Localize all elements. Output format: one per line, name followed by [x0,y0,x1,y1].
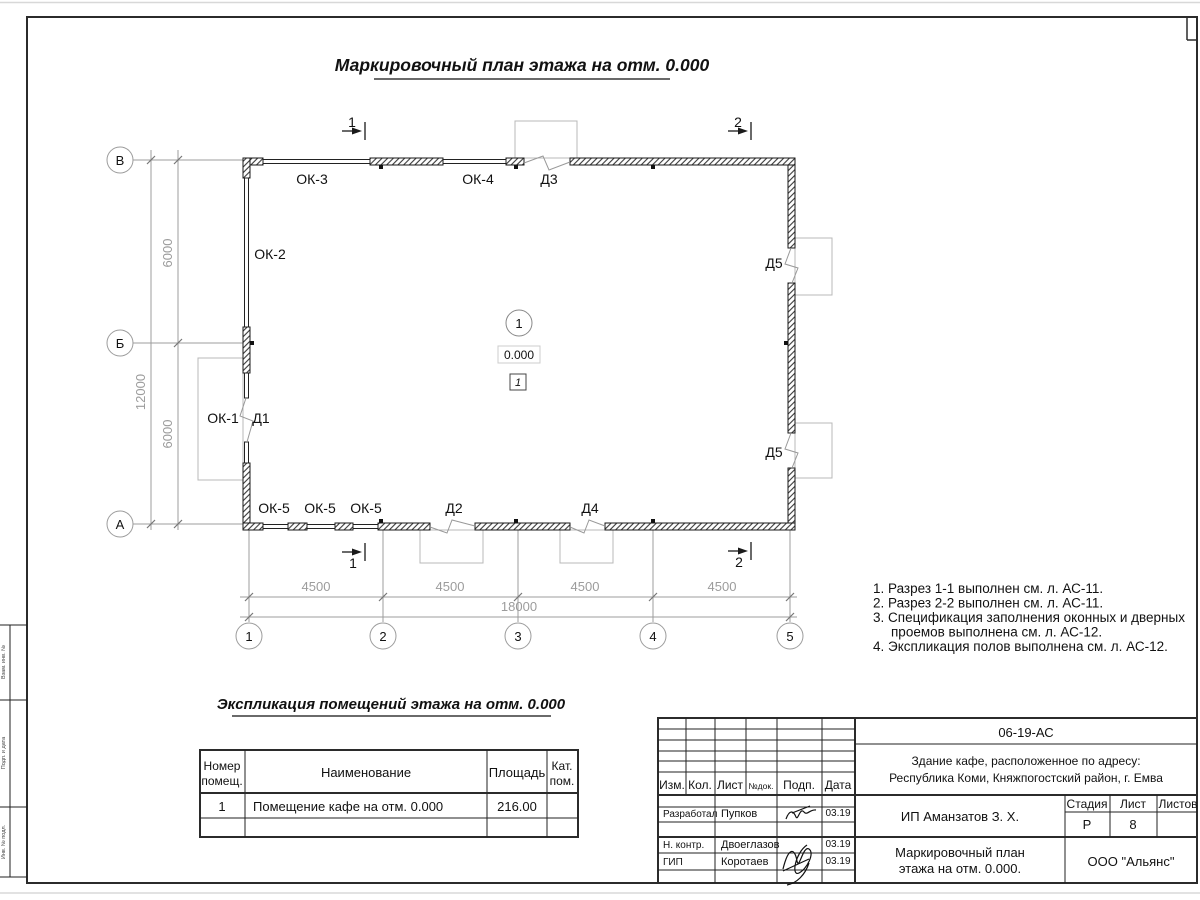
svg-text:2: 2 [735,554,743,570]
drawing-title-1: Маркировочный план [895,845,1025,860]
window-ok3 [263,160,370,164]
margin-label-vzam: Взам. инв. № [1,645,7,679]
axis-row-b: Б [116,336,125,351]
col-data: Дата [825,778,852,792]
axis-col-4: 4 [649,629,656,644]
table-title: Экспликация помещений этажа на отм. 0.00… [217,696,566,716]
window-ok5-3 [353,525,378,529]
cell-room-num: 1 [218,799,225,814]
section-1-bottom: 1 [342,543,365,571]
date-gip: 03.19 [825,856,850,867]
door-d5-top [785,248,798,283]
svg-text:1: 1 [349,555,357,571]
col-header-area: Площадь [489,765,546,780]
dim-4500-3: 4500 [571,579,600,594]
door-d5-bottom [785,433,798,468]
dim-12000: 12000 [133,374,148,410]
margin-label-inv: Инв. № подл. [1,824,7,859]
role-developer: Разработал [663,808,718,820]
col-kol: Кол. [688,778,712,792]
window-ok2 [245,178,249,327]
table-title-text: Экспликация помещений этажа на отм. 0.00… [217,696,566,713]
company-name: ООО "Альянс" [1088,854,1175,869]
window-ok1-top [245,373,249,398]
section-2-bottom: 2 [728,542,751,570]
dim-4500-1: 4500 [302,579,331,594]
dim-4500-2: 4500 [436,579,465,594]
table-row: 1 Помещение кафе на отм. 0.000 216.00 [218,799,537,814]
col-list: Лист [717,778,744,792]
label-d3: Д3 [540,171,557,187]
name-developer: Пупков [721,808,757,820]
col-header-cat-1: Кат. [552,759,573,773]
main-title: Маркировочный план этажа на отм. 0.000 [335,55,710,79]
project-address-1: Здание кафе, расположенное по адресу: [911,754,1140,768]
room-markers: 1 0.000 1 [498,310,540,390]
col-header-cat-2: пом. [550,774,575,788]
label-d5-bottom: Д5 [765,444,782,460]
name-gip: Коротаев [721,856,769,868]
svg-text:1: 1 [348,114,356,130]
role-gip: ГИП [663,857,683,868]
label-ok5-3: ОК-5 [350,500,382,516]
cell-room-name: Помещение кафе на отм. 0.000 [253,799,443,814]
section-1-top: 1 [342,114,365,140]
axis-col-1: 1 [245,629,252,644]
note-2: 2. Разрез 2-2 выполнен см. л. АС-11. [873,596,1103,611]
window-ok1-bottom [245,442,249,463]
label-ok5-1: ОК-5 [258,500,290,516]
drawing-sheet: Взам. инв. № Подп. и дата Инв. № подл. М… [0,0,1200,900]
col-header-num-2: помещ. [201,774,242,788]
col-header-num-1: Номер [204,759,241,773]
note-4: 4. Экспликация полов выполнена см. л. АС… [873,639,1168,654]
drawing-title-2: этажа на отм. 0.000. [899,861,1021,876]
note-1: 1. Разрез 1-1 выполнен см. л. АС-11. [873,581,1103,596]
role-ncontrol: Н. контр. [663,840,704,851]
label-ok1: ОК-1 [207,410,239,426]
title-block: Изм. Кол. Лист №док. Подп. Дата Разработ… [658,718,1198,885]
section-2-top: 2 [728,114,751,140]
door-openings [240,156,798,533]
sheet-value: 8 [1129,817,1136,832]
room-number: 1 [515,316,522,331]
room-table: Номер помещ. Наименование Площадь Кат. п… [200,750,578,837]
label-d1: Д1 [252,410,269,426]
col-podp: Подп. [783,778,815,792]
date-ncontrol: 03.19 [825,839,850,850]
doc-number: 06-19-АС [998,725,1053,740]
floor-type-mark: 1 [515,377,521,389]
label-ok3: ОК-3 [296,171,328,187]
name-ncontrol: Двоеглазов [721,839,780,851]
wall-grid-ticks [250,165,788,523]
note-3-cont: проемов выполнена см. л. АС-12. [891,625,1102,640]
axis-bubbles: В Б А 1 2 3 4 5 [107,147,803,649]
main-title-text: Маркировочный план этажа на отм. 0.000 [335,55,710,75]
door-d4 [570,520,605,533]
axis-row-v: В [116,153,125,168]
door-d1 [240,398,253,442]
door-d2 [430,520,475,533]
label-ok4: ОК-4 [462,171,494,187]
window-ok4 [443,160,506,164]
col-izm: Изм. [659,778,685,792]
axis-col-2: 2 [379,629,386,644]
plan-labels: ОК-3 ОК-4 Д3 ОК-2 ОК-1 Д1 ОК-5 ОК-5 ОК-5… [207,171,783,516]
note-3: 3. Спецификация заполнения оконных и две… [873,610,1185,625]
cell-room-area: 216.00 [497,799,537,814]
label-ok5-2: ОК-5 [304,500,336,516]
dim-6000-top: 6000 [160,239,175,268]
drawing-canvas: Взам. инв. № Подп. и дата Инв. № подл. М… [0,0,1200,900]
walls [243,158,795,530]
axis-grid: 4500 4500 4500 4500 18000 6000 6000 1200… [133,150,797,622]
col-header-name: Наименование [321,765,411,780]
label-d4: Д4 [581,500,598,516]
sheets-label: Листов [1159,797,1198,811]
label-d2: Д2 [445,500,462,516]
sheet-label: Лист [1120,797,1147,811]
window-ok5-1 [263,525,288,529]
dim-18000: 18000 [501,599,537,614]
date-developer: 03.19 [825,808,850,819]
signature-developer [786,806,816,819]
windows [245,160,507,529]
porches [198,121,832,563]
stage-label: Стадия [1067,797,1108,811]
col-doc: №док. [749,781,774,791]
left-margin-boxes: Взам. инв. № Подп. и дата Инв. № подл. [0,625,27,877]
dim-4500-4b: 4500 [708,579,737,594]
client-name: ИП Аманзатов З. Х. [901,809,1019,824]
axis-col-3: 3 [514,629,521,644]
dim-6000-bottom: 6000 [160,420,175,449]
window-ok5-2 [307,525,335,529]
axis-col-5: 5 [786,629,793,644]
label-d5-top: Д5 [765,255,782,271]
room-elevation: 0.000 [504,348,534,362]
signature-approvals [783,845,811,885]
notes-list: 1. Разрез 1-1 выполнен см. л. АС-11. 2. … [873,581,1185,654]
margin-label-podp: Подп. и дата [1,736,7,769]
axis-row-a: А [116,517,125,532]
label-ok2: ОК-2 [254,246,286,262]
stage-value: Р [1083,817,1092,832]
project-address-2: Республика Коми, Княжпогостский район, г… [889,771,1163,785]
svg-text:2: 2 [734,114,742,130]
